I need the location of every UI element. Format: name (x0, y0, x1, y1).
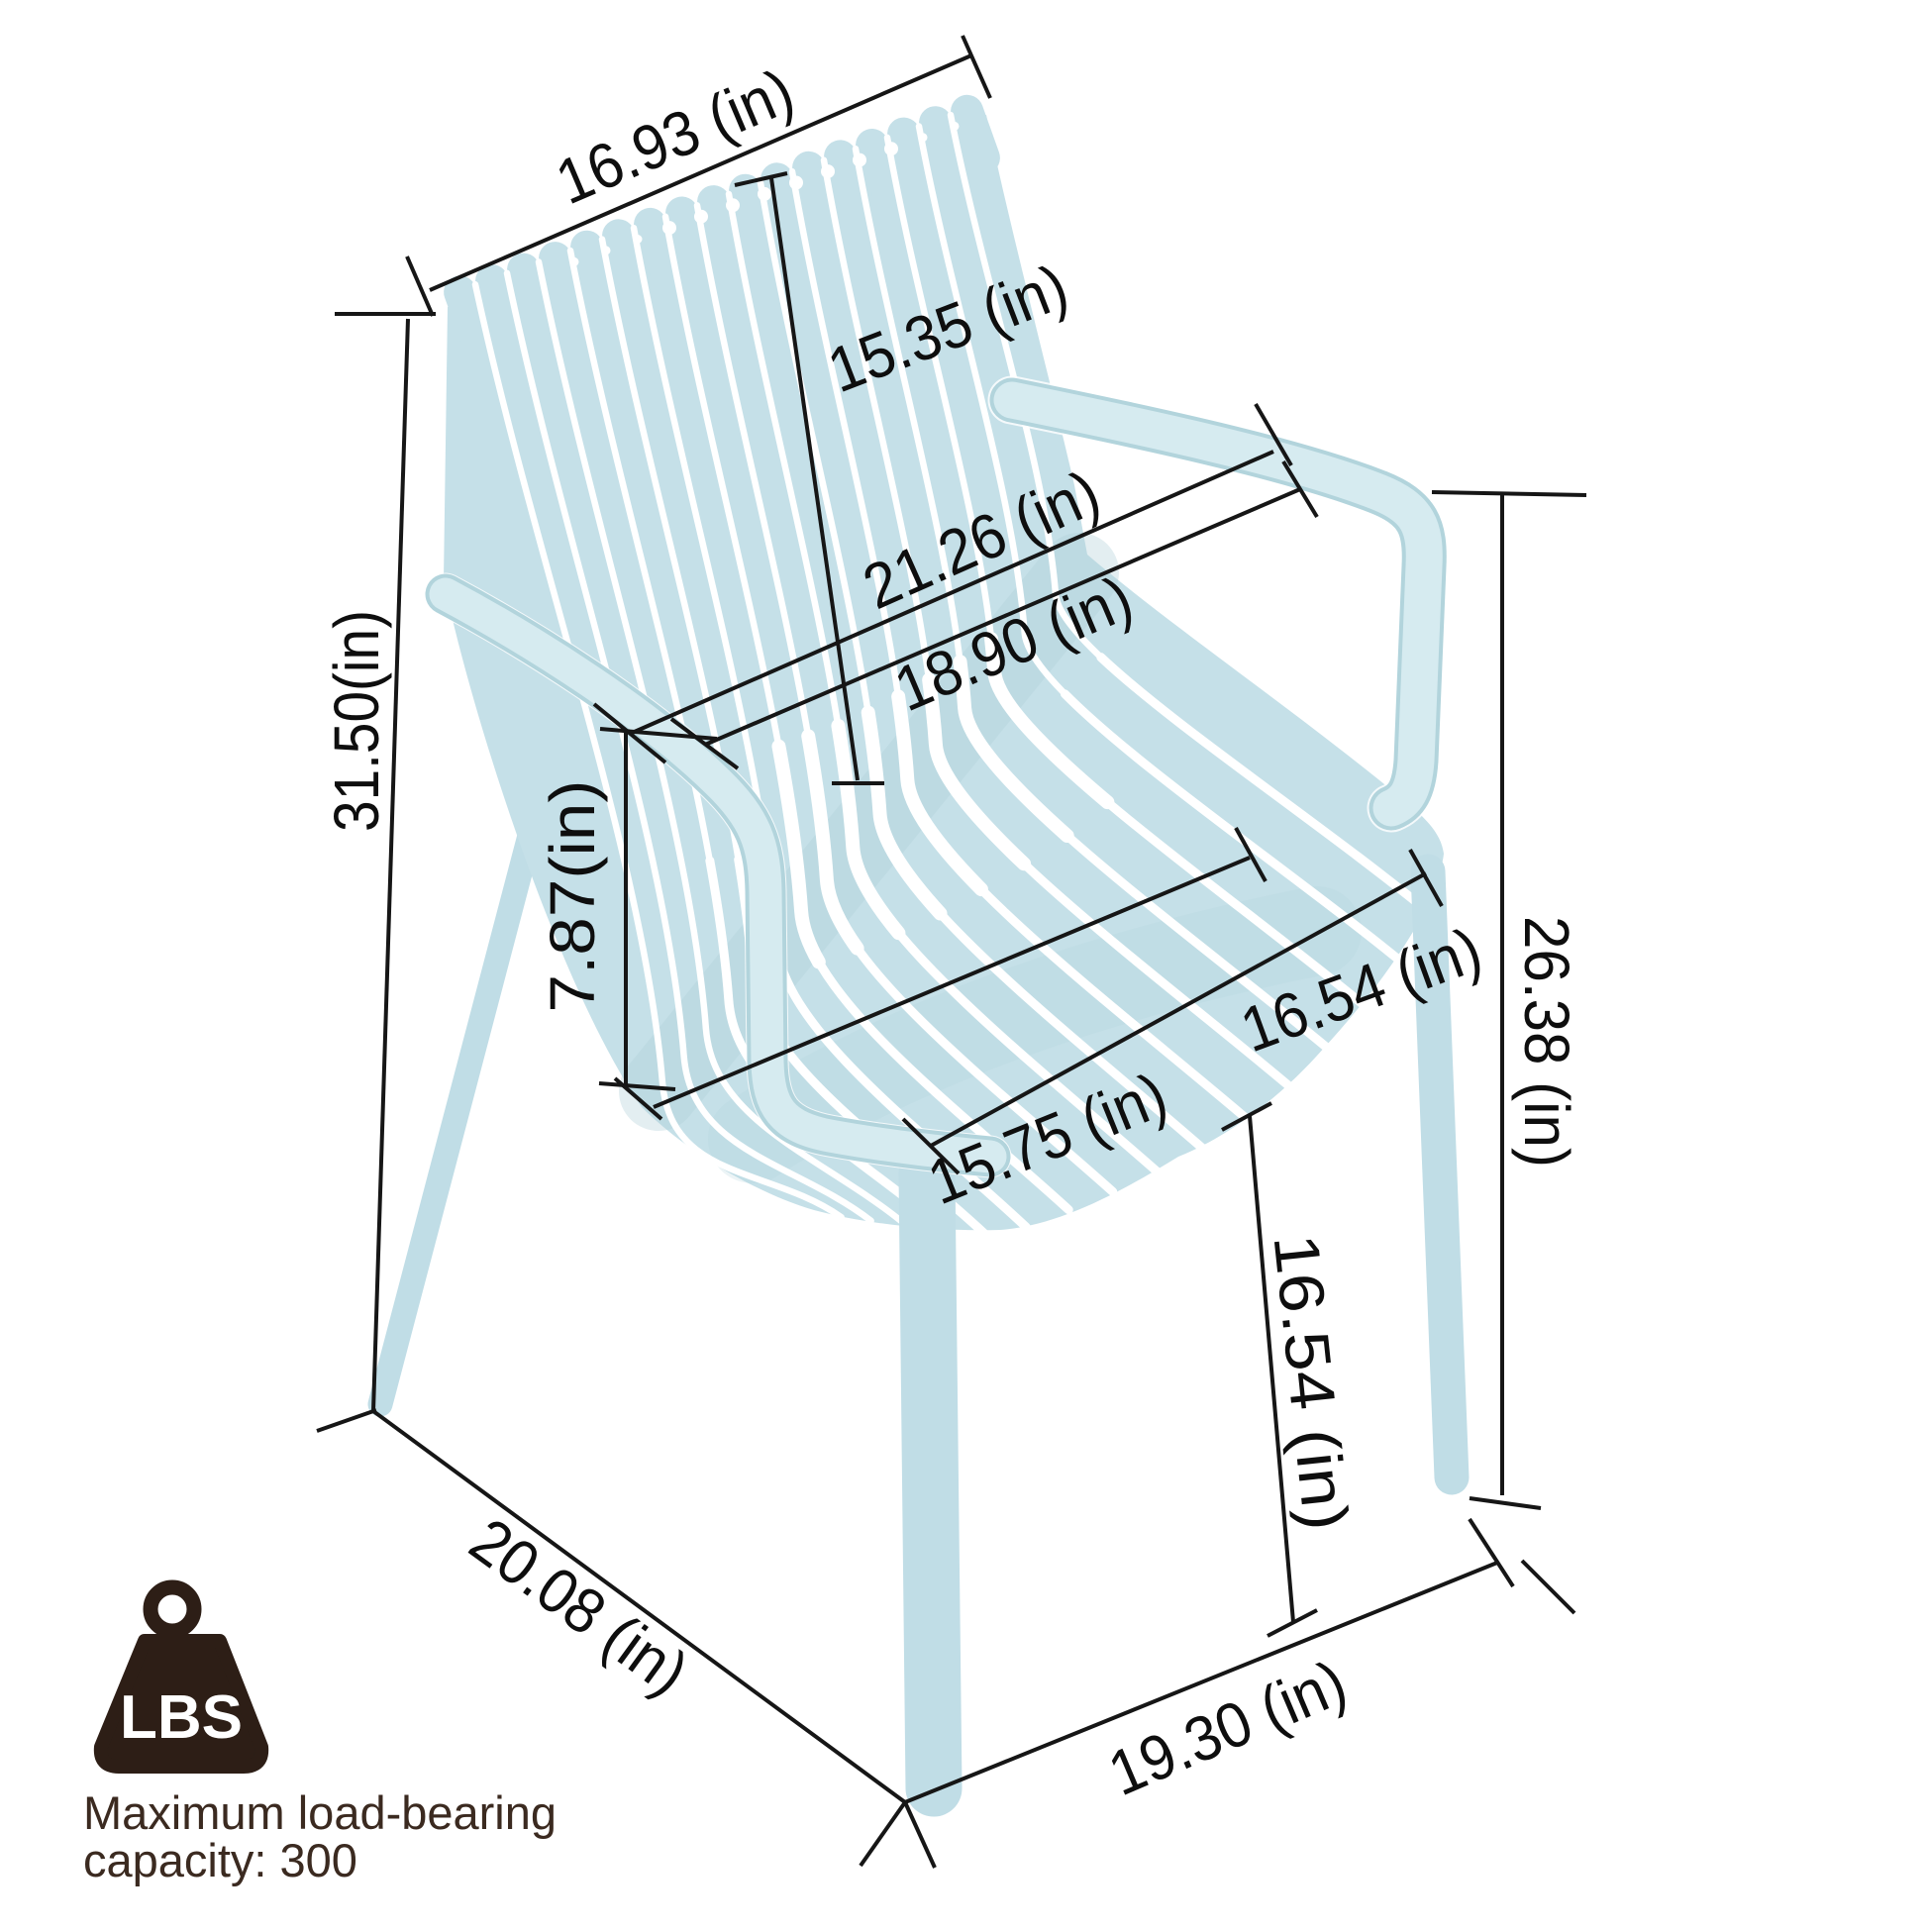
svg-text:26.38 (in): 26.38 (in) (1511, 916, 1582, 1168)
svg-text:31.50(in): 31.50(in) (321, 610, 392, 832)
svg-text:Maximum load-bearing: Maximum load-bearing (83, 1786, 557, 1839)
svg-text:LBS: LBS (120, 1683, 243, 1752)
svg-text:capacity: 300: capacity: 300 (83, 1834, 357, 1886)
svg-text:7.87(in): 7.87(in) (537, 780, 608, 1013)
